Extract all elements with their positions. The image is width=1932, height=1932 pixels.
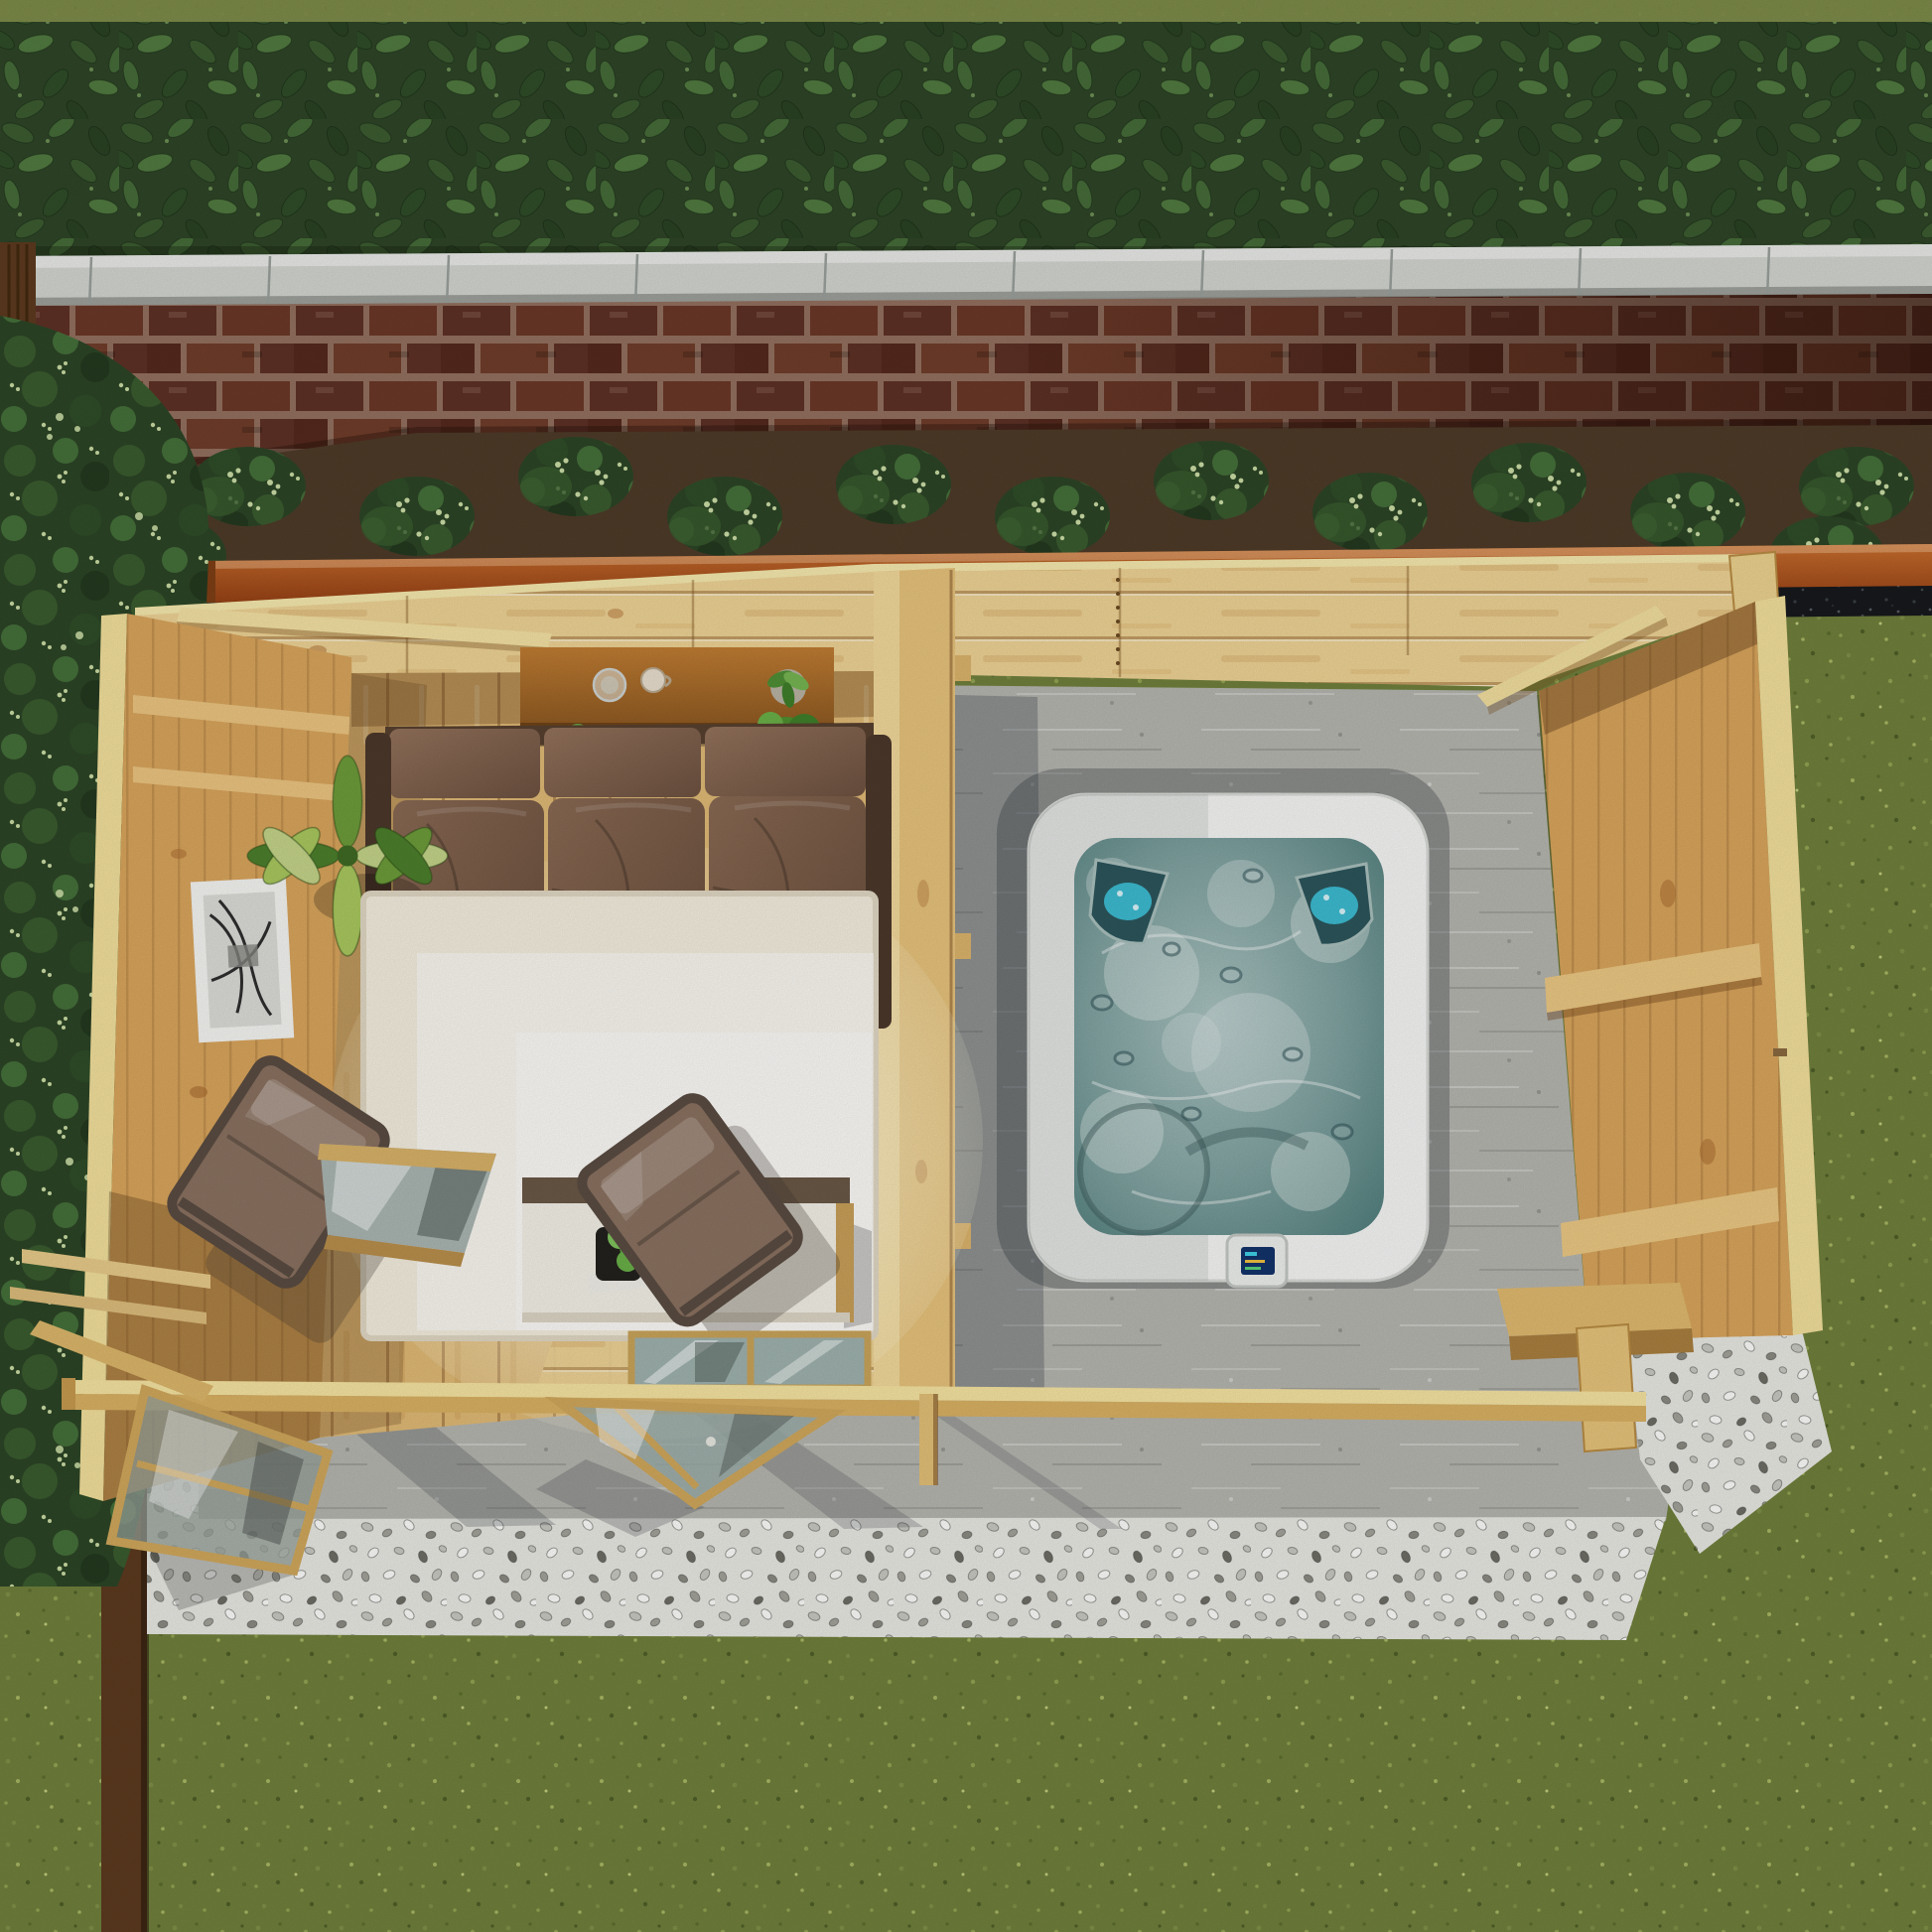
garden-scene (0, 0, 1932, 1932)
aerial-render (0, 0, 1932, 1932)
grain-overlay (0, 0, 1932, 1932)
